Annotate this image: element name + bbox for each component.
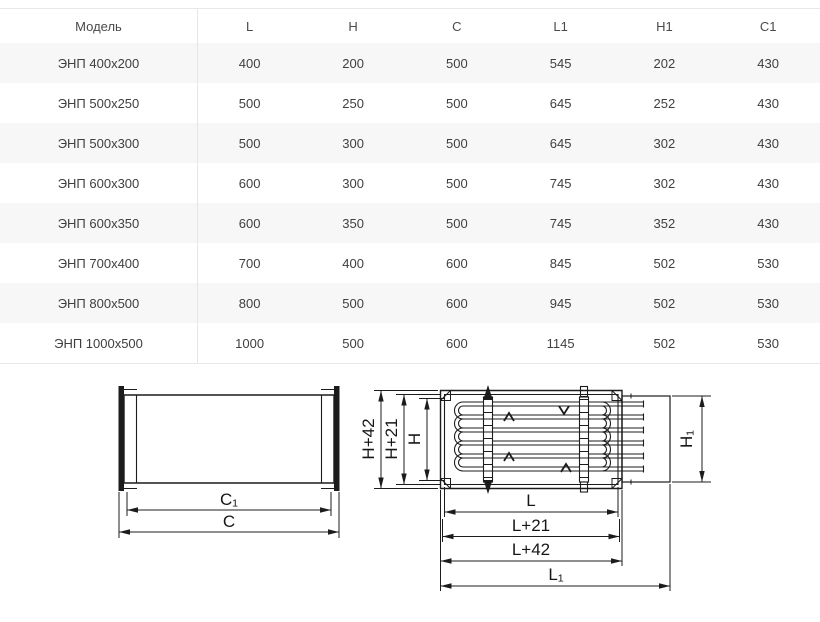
value-cell: 600 [405,323,509,364]
right-flange [334,386,340,491]
page: МодельLHCL1H1C1 ЭНП 400x2004002005005452… [0,0,820,622]
value-cell: 845 [509,243,613,283]
table-row: ЭНП 600x300600300500745302430 [0,163,820,203]
front-view-diagram: H+42 H+21 H H₁ L L+21 L+42 L₁ [359,385,711,591]
table-row: ЭНП 600x350600350500745352430 [0,203,820,243]
value-cell: 430 [716,43,820,83]
col-header: C1 [716,9,820,44]
value-cell: 302 [613,123,717,163]
terminal-box [622,396,670,482]
value-cell: 700 [198,243,302,283]
dim-label-l21: L+21 [512,516,550,535]
col-header: L1 [509,9,613,44]
support-bracket-left [484,385,493,494]
model-cell: ЭНП 500x300 [0,123,198,163]
value-cell: 430 [716,163,820,203]
side-view-diagram: C₁ C [119,386,340,538]
dim-label-h42: H+42 [359,418,378,459]
dim-label-c1: C₁ [220,490,238,509]
value-cell: 500 [198,83,302,123]
value-cell: 500 [405,163,509,203]
value-cell: 1000 [198,323,302,364]
value-cell: 300 [301,163,405,203]
model-cell: ЭНП 700x400 [0,243,198,283]
dimensions-table: МодельLHCL1H1C1 ЭНП 400x2004002005005452… [0,8,820,364]
col-header: H [301,9,405,44]
table-row: ЭНП 400x200400200500545202430 [0,43,820,83]
table-row: ЭНП 800x500800500600945502530 [0,283,820,323]
model-cell: ЭНП 800x500 [0,283,198,323]
col-header-model: Модель [0,9,198,44]
duct-body [124,395,334,483]
value-cell: 400 [198,43,302,83]
dim-label-l42: L+42 [512,540,550,559]
value-cell: 400 [301,243,405,283]
value-cell: 500 [405,123,509,163]
value-cell: 430 [716,123,820,163]
model-cell: ЭНП 600x300 [0,163,198,203]
value-cell: 250 [301,83,405,123]
spec-table-head-row: МодельLHCL1H1C1 [0,9,820,44]
technical-drawings: C₁ C [0,364,820,621]
value-cell: 502 [613,283,717,323]
heating-coils [455,401,644,473]
value-cell: 530 [716,323,820,364]
value-cell: 352 [613,203,717,243]
dim-label-l: L [526,491,535,510]
value-cell: 500 [405,83,509,123]
value-cell: 430 [716,203,820,243]
model-cell: ЭНП 400x200 [0,43,198,83]
table-row: ЭНП 500x250500250500645252430 [0,83,820,123]
value-cell: 500 [301,323,405,364]
dim-label-h: H [405,433,424,445]
value-cell: 945 [509,283,613,323]
value-cell: 745 [509,203,613,243]
value-cell: 500 [405,43,509,83]
value-cell: 500 [405,203,509,243]
value-cell: 545 [509,43,613,83]
model-cell: ЭНП 500x250 [0,83,198,123]
dim-label-l1: L₁ [548,565,563,584]
dim-label-h1: H₁ [677,430,696,448]
value-cell: 745 [509,163,613,203]
bracket-arrow-up-icon [484,385,493,399]
heater-casing [441,391,623,489]
value-cell: 502 [613,243,717,283]
value-cell: 530 [716,283,820,323]
value-cell: 530 [716,243,820,283]
support-bracket-right [580,387,589,493]
chevron-up-icon [504,413,514,421]
value-cell: 645 [509,83,613,123]
model-cell: ЭНП 600x350 [0,203,198,243]
table-row: ЭНП 1000x50010005006001145502530 [0,323,820,364]
value-cell: 800 [198,283,302,323]
dim-label-c: C [223,512,235,531]
model-cell: ЭНП 1000x500 [0,323,198,364]
value-cell: 600 [405,283,509,323]
col-header: C [405,9,509,44]
value-cell: 500 [198,123,302,163]
value-cell: 645 [509,123,613,163]
value-cell: 350 [301,203,405,243]
value-cell: 430 [716,83,820,123]
value-cell: 300 [301,123,405,163]
table-row: ЭНП 500x300500300500645302430 [0,123,820,163]
col-header: L [198,9,302,44]
left-flange [119,386,125,491]
value-cell: 200 [301,43,405,83]
dim-label-h21: H+21 [382,418,401,459]
value-cell: 600 [198,163,302,203]
value-cell: 302 [613,163,717,203]
value-cell: 502 [613,323,717,364]
value-cell: 600 [198,203,302,243]
spec-table-body: ЭНП 400x200400200500545202430ЭНП 500x250… [0,43,820,364]
col-header: H1 [613,9,717,44]
value-cell: 600 [405,243,509,283]
value-cell: 202 [613,43,717,83]
chevron-down-icon [559,406,569,414]
table-row: ЭНП 700x400700400600845502530 [0,243,820,283]
bracket-arrow-down-icon [484,480,493,494]
value-cell: 1145 [509,323,613,364]
value-cell: 252 [613,83,717,123]
value-cell: 500 [301,283,405,323]
